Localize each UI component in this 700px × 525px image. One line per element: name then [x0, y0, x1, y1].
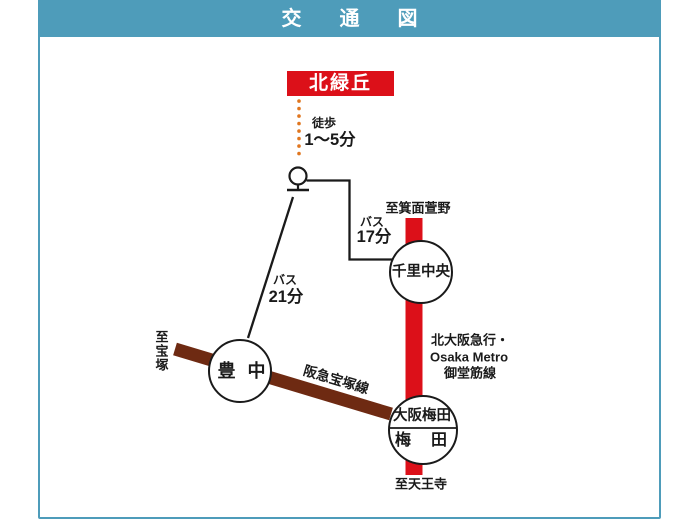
bus17-time-label: 17分: [357, 229, 392, 246]
station-label-osaka-umeda: 大阪梅田: [393, 409, 451, 424]
walk-mode-label: 徒歩: [312, 117, 336, 129]
bus21-mode-label: バス: [273, 274, 297, 286]
origin-label: 北緑丘: [309, 74, 372, 93]
midosuji-line-label-1: 北大阪急行・: [431, 334, 509, 347]
direction-takarazuka: 至宝塚: [155, 330, 168, 372]
direction-minoh-kayano: 至箕面萱野: [385, 202, 450, 215]
bus21-time-label: 21分: [269, 289, 304, 306]
midosuji-line-label-2: Osaka Metro: [430, 351, 508, 364]
midosuji-line-label-3: 御堂筋線: [444, 367, 496, 380]
station-circle-umeda: [389, 396, 457, 464]
origin-badge: 北緑丘: [287, 71, 394, 96]
page-title: 交 通 図: [273, 9, 427, 29]
direction-tennoji: 至天王寺: [395, 478, 447, 491]
bus-stop-icon: [287, 168, 309, 191]
bus-route-21min: [248, 197, 293, 338]
station-label-toyonaka: 豊 中: [218, 362, 263, 380]
header-bar: 交 通 図: [38, 0, 661, 37]
access-map: 交 通 図 北緑丘 徒歩 1〜5分 バス 17分 バス 21分 至箕面萱野 至天…: [0, 0, 700, 525]
station-label-senri-chuo: 千里中央: [392, 265, 450, 280]
bus17-mode-label: バス: [360, 216, 384, 228]
walk-time-label: 1〜5分: [304, 132, 355, 149]
station-label-umeda: 梅 田: [395, 433, 449, 449]
